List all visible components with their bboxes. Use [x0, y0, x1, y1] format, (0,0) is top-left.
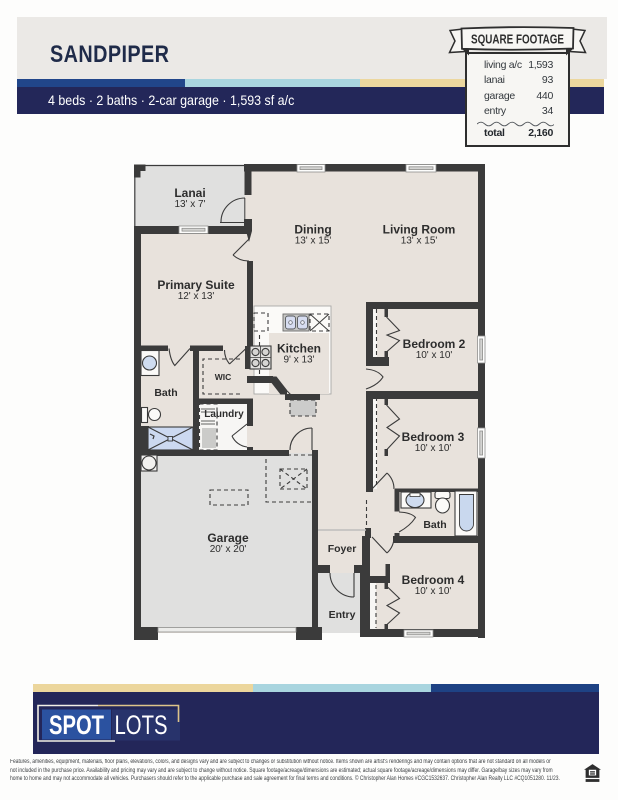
svg-text:13' x 15': 13' x 15' — [401, 236, 438, 247]
svg-text:Entry: Entry — [329, 609, 356, 621]
svg-text:Foyer: Foyer — [328, 543, 357, 555]
svg-text:WIC: WIC — [215, 372, 232, 382]
svg-text:9' x 13': 9' x 13' — [283, 355, 314, 366]
svg-text:10' x 10': 10' x 10' — [415, 586, 452, 597]
svg-text:Bath: Bath — [423, 519, 446, 531]
svg-text:Bedroom 3: Bedroom 3 — [402, 430, 465, 444]
svg-text:Kitchen: Kitchen — [277, 342, 321, 356]
svg-text:Dining: Dining — [294, 223, 331, 237]
svg-text:Garage: Garage — [207, 531, 249, 545]
svg-text:LOTS: LOTS — [115, 710, 168, 740]
svg-text:13' x 15': 13' x 15' — [295, 236, 332, 247]
svg-text:Living Room: Living Room — [383, 223, 456, 237]
svg-text:SPOT: SPOT — [49, 710, 104, 740]
svg-text:Primary Suite: Primary Suite — [157, 278, 235, 292]
svg-text:20' x 20': 20' x 20' — [210, 544, 247, 555]
svg-text:Bedroom 2: Bedroom 2 — [403, 337, 466, 351]
svg-text:Bedroom 4: Bedroom 4 — [402, 573, 465, 587]
svg-text:Lanai: Lanai — [174, 186, 205, 200]
svg-text:13' x 7': 13' x 7' — [174, 199, 205, 210]
svg-text:12' x 13': 12' x 13' — [178, 291, 215, 302]
svg-text:Laundry: Laundry — [204, 409, 244, 420]
svg-text:10' x 10': 10' x 10' — [415, 443, 452, 454]
svg-text:10' x 10': 10' x 10' — [416, 350, 453, 361]
svg-text:Bath: Bath — [154, 387, 177, 399]
